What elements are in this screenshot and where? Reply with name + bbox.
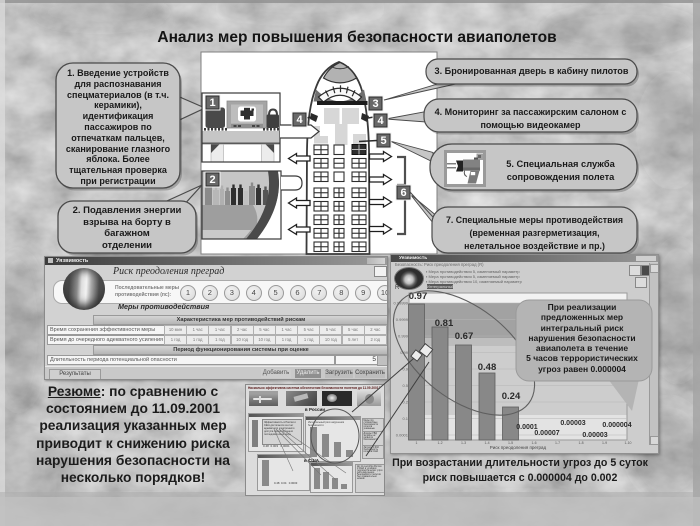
svg-text:0.97: 0.97 <box>409 291 428 302</box>
svg-text:1-8: 1-8 <box>578 441 583 445</box>
svg-text:0.9: 0.9 <box>402 367 408 372</box>
svg-text:0.48: 0.48 <box>478 362 497 373</box>
svg-text:0.9999: 0.9999 <box>396 317 409 322</box>
svg-text:3: 3 <box>372 98 378 110</box>
svg-text:0.000004: 0.000004 <box>602 422 631 429</box>
svg-text:0.0001: 0.0001 <box>396 433 409 438</box>
svg-text:0.2: 0.2 <box>402 400 408 405</box>
svg-text:4: 4 <box>377 115 384 127</box>
svg-text:0.1: 0.1 <box>402 416 408 421</box>
svg-text:Риск преодоления преград: Риск преодоления преград <box>490 445 547 450</box>
svg-text:0.00007: 0.00007 <box>534 430 559 437</box>
svg-text:0.24: 0.24 <box>502 391 521 402</box>
svg-text:4: 4 <box>296 114 303 126</box>
svg-text:1: 1 <box>209 97 215 109</box>
svg-text:0.67: 0.67 <box>455 331 474 342</box>
svg-text:1-9: 1-9 <box>602 441 607 445</box>
svg-text:2: 2 <box>209 174 215 186</box>
svg-text:1-3: 1-3 <box>461 441 466 445</box>
svg-text:1-10: 1-10 <box>624 441 631 445</box>
svg-text:0.5: 0.5 <box>402 383 408 388</box>
svg-text:0.81: 0.81 <box>435 318 454 329</box>
svg-text:1: 1 <box>416 441 418 445</box>
svg-text:6: 6 <box>400 187 406 199</box>
svg-text:0.00003: 0.00003 <box>560 420 585 427</box>
svg-text:0.999: 0.999 <box>398 334 409 339</box>
svg-text:1-2: 1-2 <box>437 441 442 445</box>
svg-text:5: 5 <box>380 135 386 147</box>
svg-text:1-7: 1-7 <box>555 441 560 445</box>
svg-text:0.00003: 0.00003 <box>582 432 607 439</box>
